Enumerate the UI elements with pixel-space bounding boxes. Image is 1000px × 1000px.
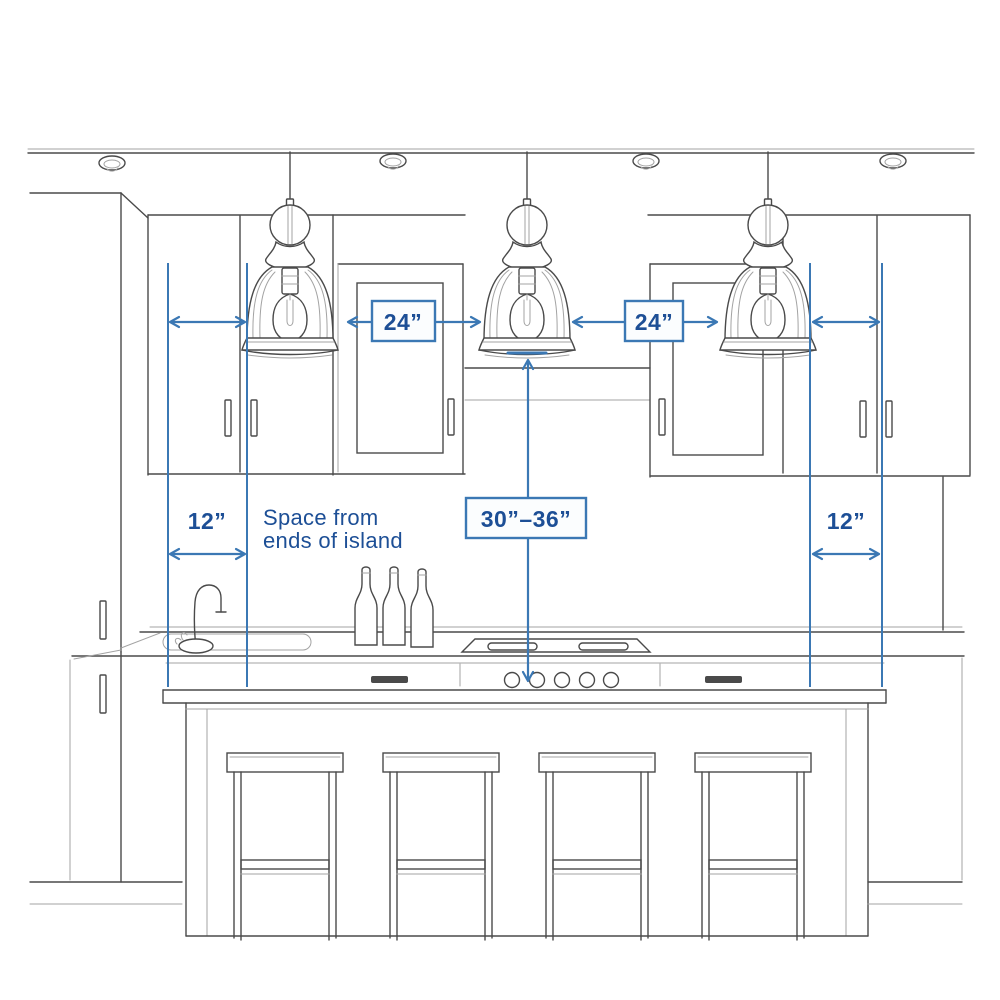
cabinet-handle xyxy=(225,400,231,436)
cabinet-handle xyxy=(886,401,892,437)
diagram-canvas: 24” 24” 30”–36” 12” 12” Space from ends … xyxy=(0,0,1000,1000)
label-12in-left: 12” xyxy=(188,508,227,534)
drawer-handle xyxy=(371,676,408,683)
note-space-from-line1: Space from xyxy=(263,505,379,530)
wine-bottles xyxy=(355,567,433,647)
label-12in-right: 12” xyxy=(827,508,866,534)
label-height-30-36: 30”–36” xyxy=(481,506,571,532)
note-space-from-line2: ends of island xyxy=(263,528,403,553)
cooktop-knob xyxy=(505,673,520,688)
cooktop-knob xyxy=(555,673,570,688)
cabinet-handle xyxy=(448,399,454,435)
kitchen-lighting-measurement-diagram: 24” 24” 30”–36” 12” 12” Space from ends … xyxy=(0,0,1000,1000)
cabinet-handle xyxy=(251,400,257,436)
label-24in-right: 24” xyxy=(635,309,674,335)
cabinet-handle xyxy=(659,399,665,435)
cooktop-knob xyxy=(604,673,619,688)
label-24in-left: 24” xyxy=(384,309,423,335)
drawer-handle xyxy=(705,676,742,683)
pantry-handle xyxy=(100,601,106,639)
cooktop-knob xyxy=(580,673,595,688)
cabinet-handle xyxy=(860,401,866,437)
pantry-handle xyxy=(100,675,106,713)
